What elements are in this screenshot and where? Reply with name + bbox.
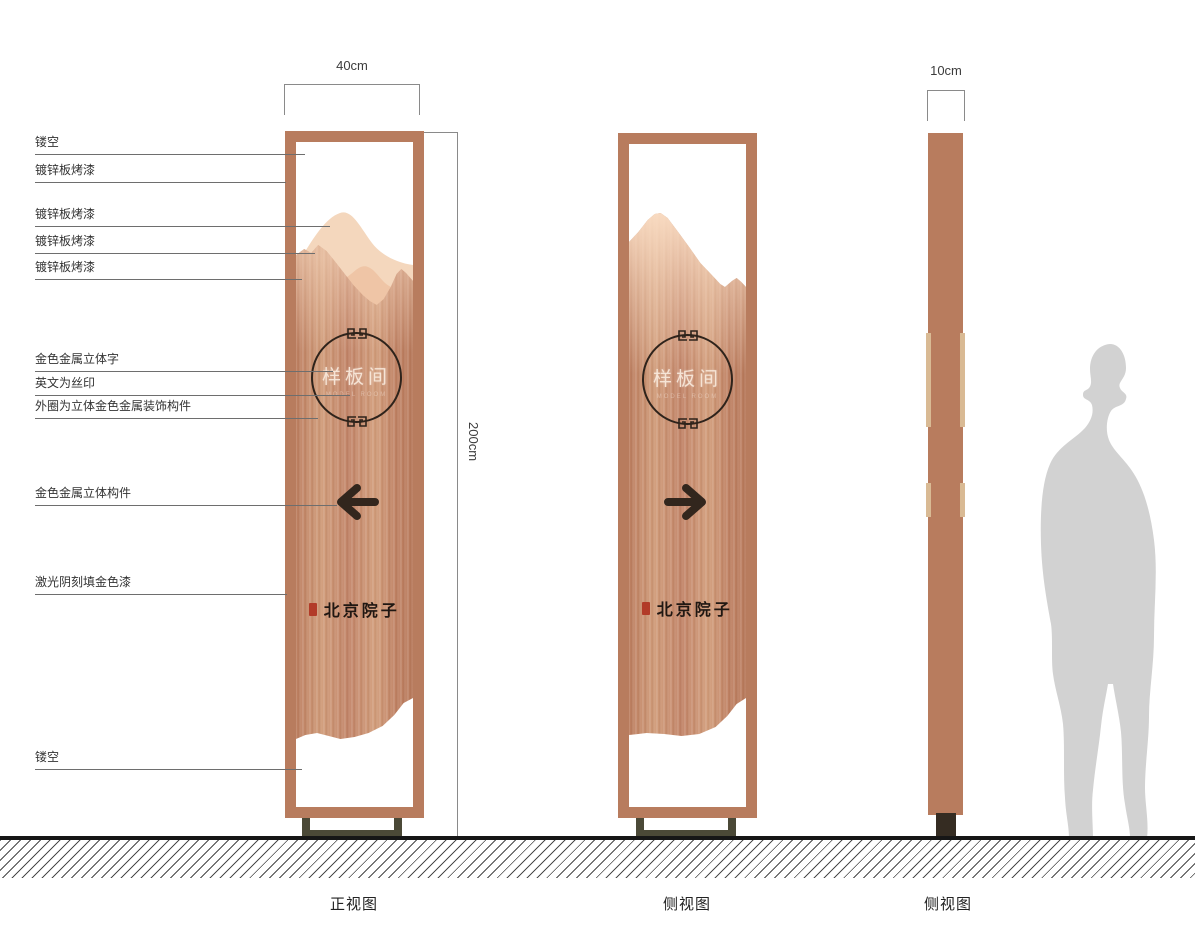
depth-dimension-label: 10cm [900,63,992,78]
fret-scroll-icon [676,329,700,341]
profile-base-foot [936,813,956,837]
brand-text: 北京院子 [324,603,400,620]
view-caption-profile: 侧视图 [898,893,998,914]
view-caption-front: 正视图 [304,893,404,914]
annotation: 镀锌板烤漆 [35,232,315,254]
annotation-label: 镀锌板烤漆 [35,205,330,226]
annotation-label: 镂空 [35,748,302,769]
ground-hatch [0,840,1195,878]
annotation-label: 激光阴刻填金色漆 [35,573,287,594]
sign-text: 样板间 [644,364,731,391]
annotation-label: 金色金属立体构件 [35,484,337,505]
brand-row: 北京院子 [296,597,413,621]
profile-view-panel [928,133,963,815]
height-dimension-line [457,132,458,837]
profile-edge-strip [960,483,965,517]
annotation-label: 外圈为立体金色金属装饰构件 [35,397,318,418]
annotation: 金色金属立体构件 [35,484,337,506]
side-view-panel: 样板间 MODEL ROOM 北京院子 [618,133,757,818]
annotation: 激光阴刻填金色漆 [35,573,287,595]
annotation: 金色金属立体字 [35,350,333,372]
profile-edge-strip [960,333,965,427]
annotation-label: 镂空 [35,133,305,154]
fret-scroll-icon [345,416,369,428]
annotation: 外圈为立体金色金属装饰构件 [35,397,318,419]
arrow-right-icon [664,482,712,522]
depth-dimension-bracket [927,90,965,121]
annotation: 镂空 [35,133,305,155]
annotation: 镀锌板烤漆 [35,258,302,280]
human-silhouette [1040,344,1165,838]
view-caption-side: 侧视图 [637,893,737,914]
annotation-label: 金色金属立体字 [35,350,333,371]
annotation: 英文为丝印 [35,374,350,396]
side-panel-face: 样板间 MODEL ROOM 北京院子 [629,144,746,807]
annotation: 镂空 [35,748,302,770]
seal-stamp-icon [309,603,317,616]
seal-stamp-icon [642,602,650,615]
sign-subtext: MODEL ROOM [644,394,731,400]
height-dimension-tick [424,132,457,133]
circle-ornament: 样板间 MODEL ROOM [642,334,733,425]
front-width-dimension-bracket [284,84,420,115]
fret-scroll-icon [345,327,369,339]
front-width-dimension-label: 40cm [284,58,420,73]
annotation: 镀锌板烤漆 [35,161,286,183]
brand-text: 北京院子 [657,602,733,619]
arrow-left-icon [331,482,379,522]
profile-edge-strip [926,333,931,427]
signage-design-drawing: 镂空 镀锌板烤漆 镀锌板烤漆 镀锌板烤漆 镀锌板烤漆 金色金属立体字 英文为丝印… [0,0,1195,927]
profile-edge-strip [926,483,931,517]
annotation-label: 英文为丝印 [35,374,350,395]
annotation: 镀锌板烤漆 [35,205,330,227]
brand-row: 北京院子 [629,596,746,620]
annotation-label: 镀锌板烤漆 [35,161,286,182]
fret-scroll-icon [676,418,700,430]
annotation-label: 镀锌板烤漆 [35,232,315,253]
height-dimension-label: 200cm [466,422,481,461]
annotation-label: 镀锌板烤漆 [35,258,302,279]
